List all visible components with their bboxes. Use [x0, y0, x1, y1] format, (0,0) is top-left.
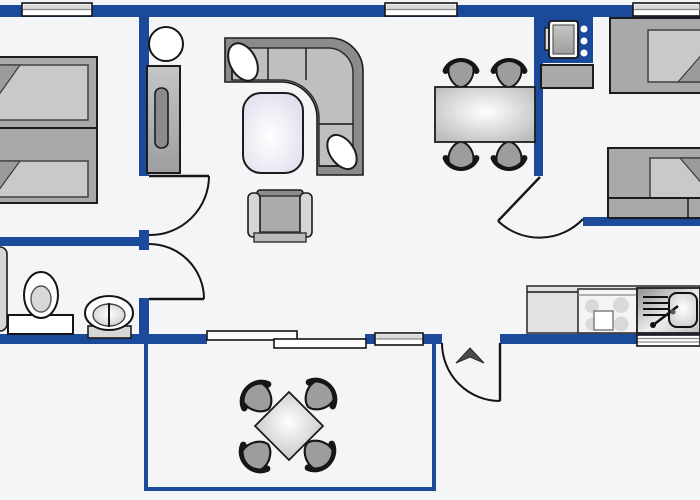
cabinet — [541, 65, 593, 88]
room-bathroom — [0, 247, 133, 338]
window-kitchen — [637, 335, 700, 346]
dining-chair-2 — [491, 61, 526, 87]
room-terrace — [234, 373, 342, 478]
dining-table — [435, 87, 535, 142]
door-bathroom — [149, 244, 204, 299]
terrace-wall-right — [432, 344, 436, 491]
single-bed-2 — [0, 128, 97, 203]
cooktop — [578, 289, 637, 333]
room-kitchen — [527, 286, 700, 333]
doors — [149, 176, 583, 401]
toilet — [24, 272, 58, 318]
door-bedroom-right — [498, 177, 583, 238]
dining-chair-1 — [443, 61, 478, 87]
wall-top — [0, 5, 700, 17]
single-bed-1 — [0, 57, 97, 128]
terrace-wall-left — [144, 344, 148, 491]
round-side-table — [149, 27, 183, 61]
window-top-middle — [385, 3, 457, 16]
wall-bedroom-bath-divider — [0, 237, 149, 246]
entrance-arrow-icon — [456, 348, 484, 363]
window-top-left — [22, 3, 92, 16]
wall-left-vertical-lower — [139, 298, 149, 344]
room-living — [147, 27, 363, 242]
dining-chair-4 — [491, 142, 526, 168]
wardrobe — [147, 66, 180, 173]
room-bedroom-right — [541, 18, 700, 218]
coffee-table — [243, 93, 303, 173]
armchair — [248, 190, 312, 242]
single-bed-4 — [608, 148, 700, 218]
single-bed-3 — [610, 18, 700, 93]
window-top-right — [633, 3, 700, 16]
shower-cabinet — [0, 247, 7, 331]
dining-chair-3 — [443, 142, 478, 168]
door-bedroom-left — [149, 176, 209, 235]
kitchen-sink — [637, 288, 700, 333]
terrace-wall-bottom — [144, 487, 436, 491]
wall-bottom-mid2 — [423, 334, 442, 344]
washbasin — [85, 296, 133, 338]
floor-plan — [0, 0, 700, 500]
window-bottom-terrace — [375, 333, 423, 345]
room-bedroom-left — [0, 57, 97, 203]
sliding-patio-door — [207, 331, 366, 348]
floor-plan-canvas — [0, 0, 700, 500]
room-dining — [435, 61, 535, 168]
